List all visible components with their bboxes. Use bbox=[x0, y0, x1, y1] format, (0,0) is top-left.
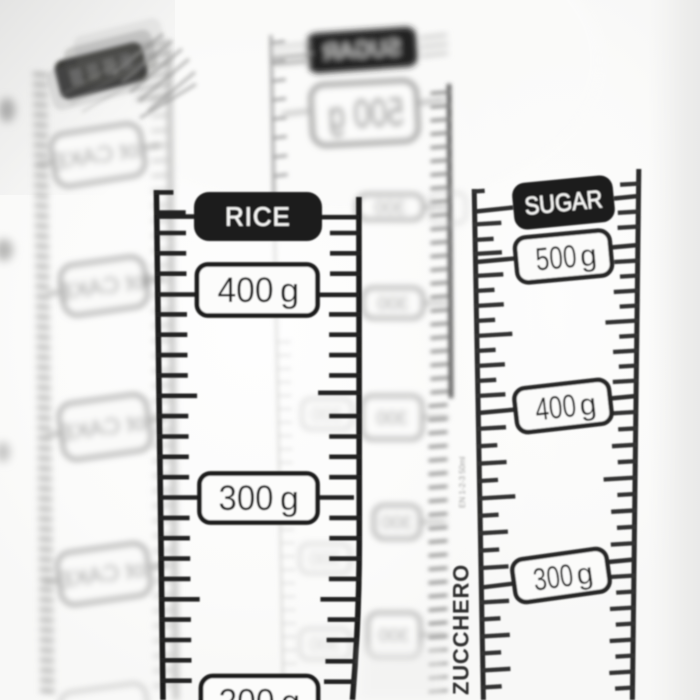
svg-text:g: g bbox=[280, 480, 299, 518]
svg-text:RICE: RICE bbox=[225, 204, 291, 232]
svg-text:500: 500 bbox=[534, 238, 578, 278]
svg-text:g: g bbox=[281, 684, 300, 700]
svg-text:ZUCCHERO: ZUCCHERO bbox=[449, 564, 474, 695]
svg-text:300: 300 bbox=[381, 513, 413, 534]
svg-text:g: g bbox=[579, 239, 599, 273]
svg-text:500 g: 500 g bbox=[327, 90, 405, 138]
svg-text:300: 300 bbox=[376, 409, 408, 430]
svg-text:300: 300 bbox=[377, 294, 409, 315]
svg-text:300: 300 bbox=[374, 198, 406, 219]
svg-text:300: 300 bbox=[219, 479, 274, 518]
svg-text:400: 400 bbox=[533, 387, 578, 427]
svg-text:g: g bbox=[280, 272, 299, 310]
svg-text:300: 300 bbox=[531, 557, 576, 598]
svg-text:300: 300 bbox=[378, 626, 410, 647]
svg-text:EN 1-2-3 50ml: EN 1-2-3 50ml bbox=[458, 456, 467, 508]
svg-text:200: 200 bbox=[219, 682, 275, 700]
svg-text:400: 400 bbox=[218, 270, 274, 310]
